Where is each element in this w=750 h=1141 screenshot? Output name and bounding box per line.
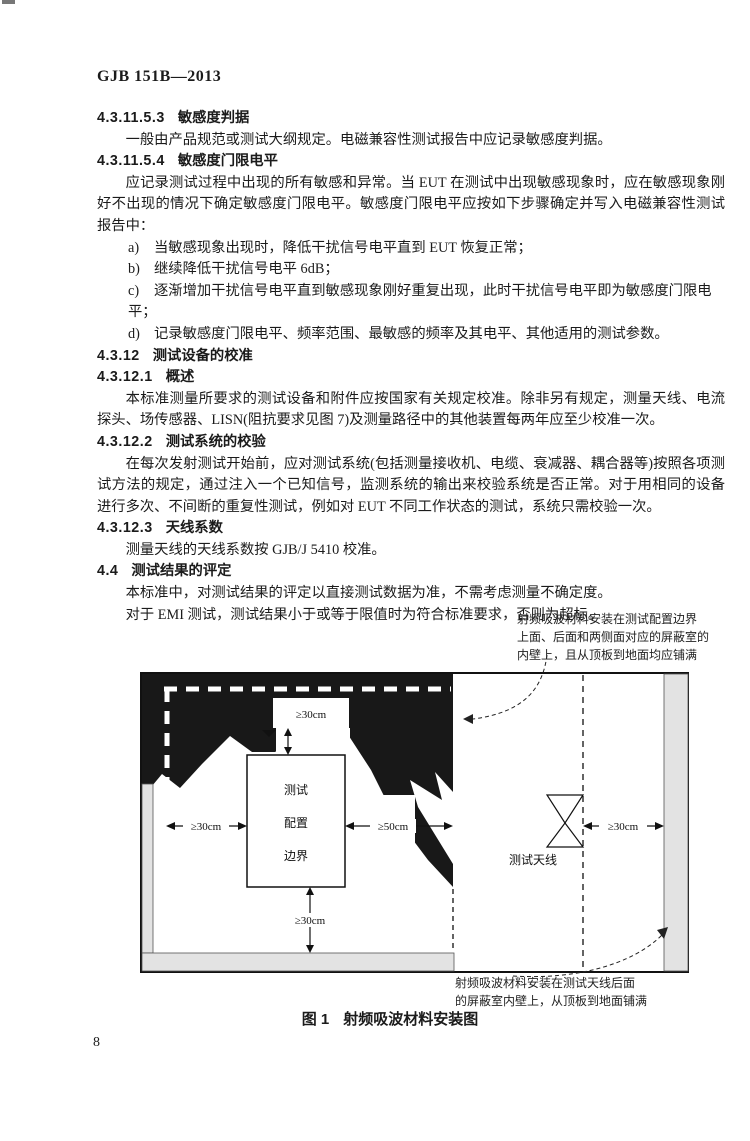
document-body: 4.3.11.5.3敏感度判据一般由产品规范或测试大纲规定。电磁兼容性测试报告中… [97, 108, 725, 626]
list-text: 逐渐增加干扰信号电平直到敏感现象刚好重复出现，此时干扰信号电平即为敏感度门限电平… [128, 283, 712, 321]
list-text: 当敏感现象出现时，降低干扰信号电平直到 EUT 恢复正常； [154, 240, 532, 256]
section-title: 测试系统的校验 [166, 434, 266, 450]
section-title: 测试结果的评定 [131, 563, 231, 579]
section-number: 4.3.12.1 [97, 369, 153, 385]
boundary-label-2: 配置 [284, 816, 308, 830]
paragraph: 在每次发射测试开始前，应对测试系统(包括测量接收机、电缆、衰减器、耦合器等)按照… [97, 454, 725, 519]
section-number: 4.3.12 [97, 348, 140, 364]
note-line: 射频吸波材料安装在测试天线后面 [455, 974, 647, 992]
figure-caption-title: 射频吸波材料安装图 [343, 1011, 478, 1028]
list-item: c)逐渐增加干扰信号电平直到敏感现象刚好重复出现，此时干扰信号电平即为敏感度门限… [97, 281, 725, 324]
boundary-label-3: 边界 [284, 849, 308, 863]
figure-note-top: 射频吸波材料安装在测试配置边界 上面、后面和两侧面对应的屏蔽室的 内壁上，且从顶… [517, 610, 709, 664]
section-title: 敏感度门限电平 [178, 153, 278, 169]
list-text: 继续降低干扰信号电平 6dB； [154, 261, 339, 277]
dim-bottom-label: ≥30cm [295, 915, 326, 927]
paragraph: 一般由产品规范或测试大纲规定。电磁兼容性测试报告中应记录敏感度判据。 [97, 130, 725, 152]
list-marker: a) [128, 238, 154, 260]
note-line: 射频吸波材料安装在测试配置边界 [517, 610, 709, 628]
scan-artifact [2, 0, 15, 4]
dim-left-label: ≥30cm [191, 821, 222, 833]
section-title: 天线系数 [166, 520, 223, 536]
figure-caption-number: 图 1 [302, 1011, 330, 1028]
section-heading: 4.3.12.3天线系数 [97, 518, 725, 540]
list-text: 记录敏感度门限电平、频率范围、最敏感的频率及其电平、其他适用的测试参数。 [154, 326, 669, 342]
section-heading: 4.3.12.2测试系统的校验 [97, 432, 725, 454]
paragraph: 本标准测量所要求的测试设备和附件应按国家有关规定校准。除非另有规定，测量天线、电… [97, 389, 725, 432]
page-number: 8 [93, 1035, 100, 1051]
note-line: 内壁上，且从顶板到地面均应铺满 [517, 646, 709, 664]
dim-right-label: ≥50cm [378, 821, 409, 833]
list-marker: d) [128, 324, 154, 346]
list-item: d)记录敏感度门限电平、频率范围、最敏感的频率及其电平、其他适用的测试参数。 [97, 324, 725, 346]
absorber-strip-bottom [142, 953, 454, 971]
figure-note-bottom: 射频吸波材料安装在测试天线后面 的屏蔽室内壁上，从顶板到地面铺满 [455, 974, 647, 1010]
section-heading: 4.3.12测试设备的校准 [97, 346, 725, 368]
boundary-label-1: 测试 [284, 782, 308, 797]
section-number: 4.4 [97, 563, 118, 579]
absorber-strip-left [142, 784, 153, 953]
section-title: 测试设备的校准 [153, 348, 253, 364]
section-number: 4.3.11.5.3 [97, 110, 165, 126]
section-heading: 4.3.12.1概述 [97, 367, 725, 389]
list-item: a)当敏感现象出现时，降低干扰信号电平直到 EUT 恢复正常； [97, 238, 725, 260]
note-line: 上面、后面和两侧面对应的屏蔽室的 [517, 628, 709, 646]
section-title: 概述 [166, 369, 195, 385]
dim-antenna-label: ≥30cm [608, 821, 639, 833]
list-marker: c) [128, 281, 154, 303]
absorber-strip-right-wall [664, 674, 688, 971]
paragraph: 应记录测试过程中出现的所有敏感和异常。当 EUT 在测试中出现敏感现象时，应在敏… [97, 173, 725, 238]
section-number: 4.3.12.3 [97, 520, 153, 536]
list-item: b)继续降低干扰信号电平 6dB； [97, 259, 725, 281]
section-number: 4.3.12.2 [97, 434, 153, 450]
dim-top-label: ≥30cm [296, 709, 327, 721]
figure-caption: 图 1射频吸波材料安装图 [140, 1008, 640, 1029]
standard-number-header: GJB 151B—2013 [97, 68, 221, 86]
section-heading: 4.3.11.5.4敏感度门限电平 [97, 151, 725, 173]
paragraph: 本标准中，对测试结果的评定以直接测试数据为准，不需考虑测量不确定度。 [97, 583, 725, 605]
document-page: GJB 151B—2013 4.3.11.5.3敏感度判据一般由产品规范或测试大… [0, 0, 750, 1141]
section-heading: 4.3.11.5.3敏感度判据 [97, 108, 725, 130]
list-marker: b) [128, 259, 154, 281]
paragraph: 测量天线的天线系数按 GJB/J 5410 校准。 [97, 540, 725, 562]
section-title: 敏感度判据 [178, 110, 249, 126]
section-heading: 4.4测试结果的评定 [97, 561, 725, 583]
figure-1: 测试 配置 边界 ≥30cm ≥30cm ≥ [85, 608, 740, 1020]
section-number: 4.3.11.5.4 [97, 153, 165, 169]
antenna-label: 测试天线 [509, 852, 557, 867]
figure-diagram: 测试 配置 边界 ≥30cm ≥30cm ≥ [85, 608, 740, 1020]
